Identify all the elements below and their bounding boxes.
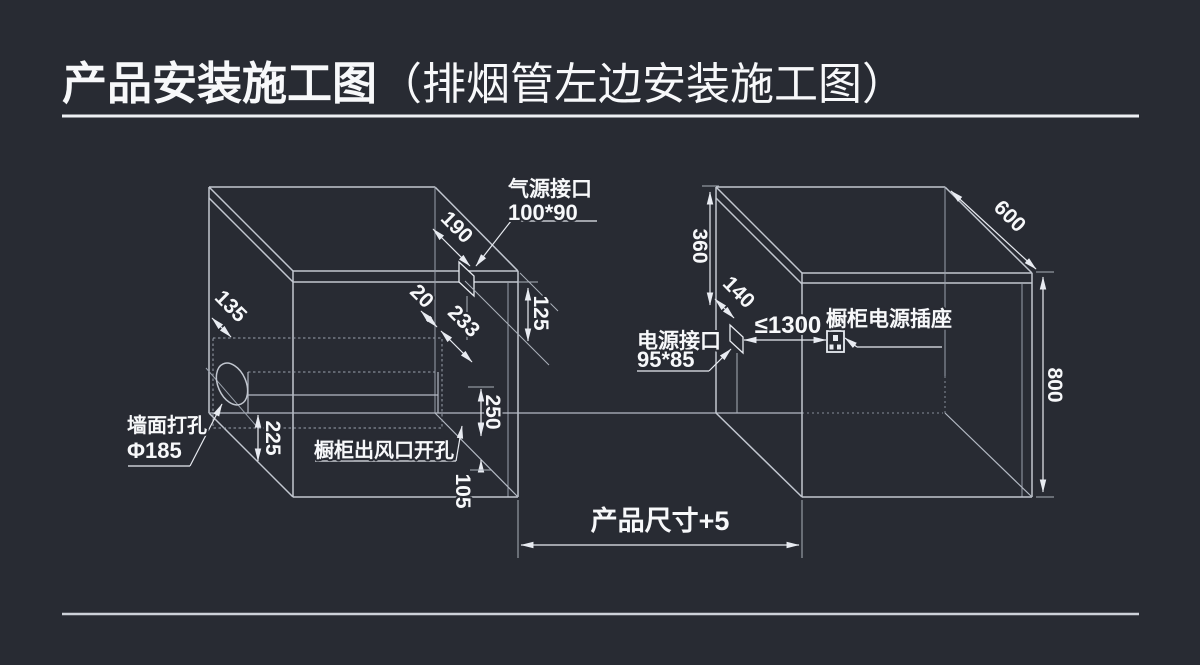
right-cabinet-wireframe (716, 187, 1032, 497)
product-size-label: 产品尺寸+5 (591, 506, 730, 536)
socket-label: 橱柜电源插座 (826, 307, 952, 331)
dim-1300-label: ≤1300 (755, 312, 822, 339)
power-port-label-line2: 95*85 (637, 347, 695, 372)
dim-105-label: 105 (451, 473, 474, 508)
dim-360-label: 360 (688, 228, 711, 263)
power-socket-icon (827, 331, 844, 352)
dim-600-label: 600 (989, 196, 1030, 237)
wall-hole-circle (210, 358, 253, 410)
dim-233-label: 233 (443, 301, 484, 342)
dim-225-label: 225 (261, 420, 284, 455)
dim-20-label: 20 (405, 280, 438, 313)
dim-140-label: 140 (718, 272, 759, 313)
dim-190-label: 190 (436, 207, 477, 248)
gas-port-label-line2: 100*90 (508, 200, 578, 225)
dim-250-label: 250 (481, 394, 504, 429)
page-subtitle: （排烟管左边安装施工图） (378, 60, 906, 109)
page-title: 产品安装施工图 (62, 58, 377, 109)
power-port-hole (730, 325, 743, 353)
cad-drawing-canvas: 产品安装施工图 （排烟管左边安装施工图） (0, 0, 1200, 665)
page-header: 产品安装施工图 （排烟管左边安装施工图） (62, 58, 1139, 116)
gas-port-label-line1: 气源接口 (507, 177, 592, 201)
wall-hole-label-line2: Φ185 (127, 438, 182, 463)
gas-port-hole (459, 262, 474, 296)
installation-drawing-page: 产品安装施工图 （排烟管左边安装施工图） (0, 0, 1200, 665)
dim-135-label: 135 (210, 286, 251, 327)
dim-125-label: 125 (529, 295, 552, 330)
dim-800-label: 800 (1043, 367, 1066, 402)
left-labels: 190 125 20 233 135 225 250 105 气源接口 100*… (127, 177, 592, 509)
vent-cutout-label: 橱柜出风口开孔 (314, 438, 454, 462)
wall-hole-label-line1: 墙面打孔 (127, 413, 207, 437)
